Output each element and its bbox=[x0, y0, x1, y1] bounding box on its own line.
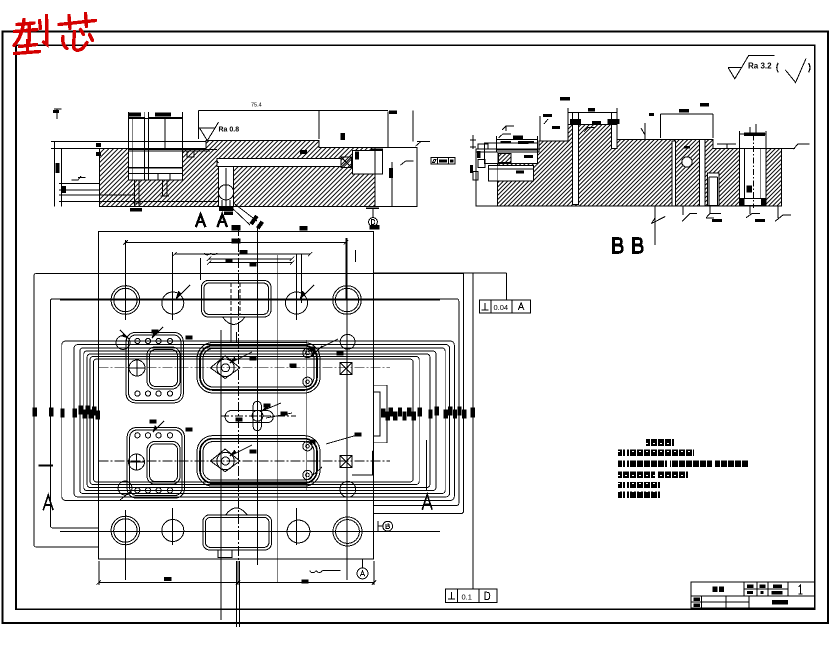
svg-text:Ra 3.2: Ra 3.2 bbox=[748, 62, 772, 71]
svg-text:Ra 0.8: Ra 0.8 bbox=[219, 127, 240, 134]
svg-text:75.4: 75.4 bbox=[251, 103, 262, 109]
svg-text:0.04: 0.04 bbox=[494, 303, 509, 312]
svg-text:0.1: 0.1 bbox=[462, 593, 472, 602]
